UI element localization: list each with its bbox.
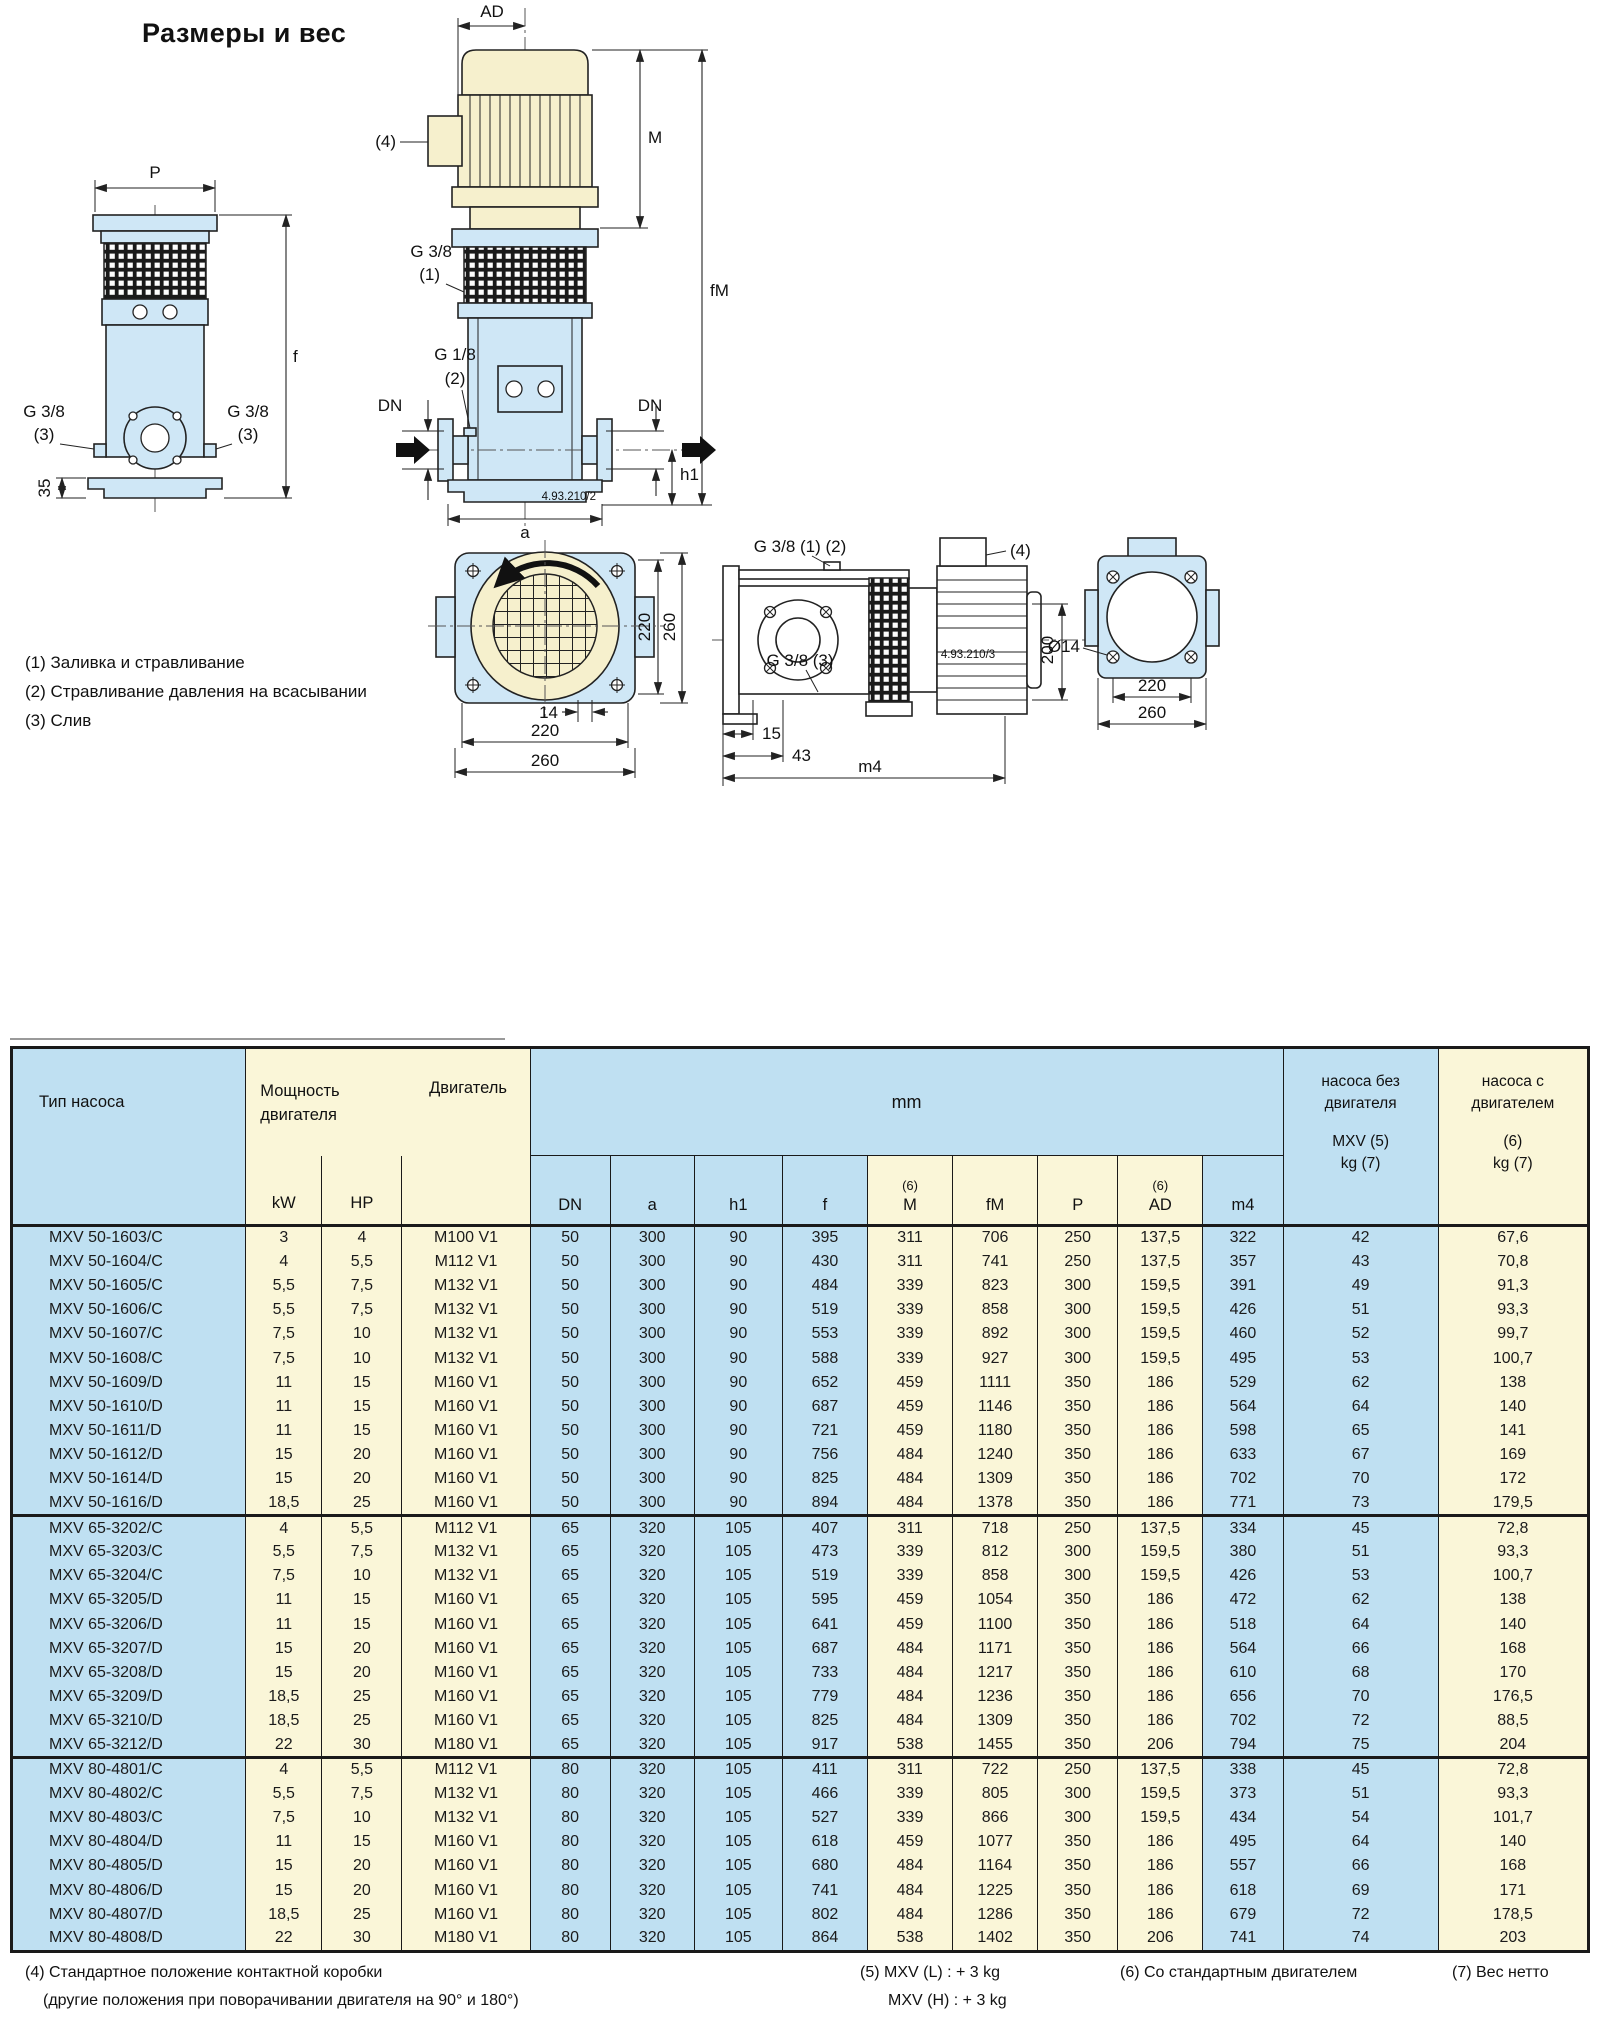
table-cell: 72	[1283, 1903, 1438, 1927]
table-row: MXV 80-4805/D1520M160 V18032010568048411…	[12, 1854, 1589, 1878]
table-cell: 65	[530, 1516, 610, 1540]
table-cell: 90	[694, 1274, 782, 1298]
table-cell: 300	[610, 1274, 694, 1298]
table-cell: 350	[1038, 1661, 1118, 1685]
table-cell: 741	[953, 1250, 1038, 1274]
legend-item-2: (2) Стравливание давления на всасывании	[25, 677, 367, 706]
dim-label-h1: h1	[680, 465, 699, 484]
pump-type-cell: MXV 65-3206/D	[12, 1613, 246, 1637]
table-cell: 350	[1038, 1927, 1118, 1951]
table-cell: 459	[867, 1830, 952, 1854]
table-block: MXV 65-3202/C45,5M112 V16532010540731171…	[12, 1516, 1589, 1758]
dim-label-d14: Ø14	[1048, 637, 1080, 656]
table-cell: 65	[530, 1613, 610, 1637]
table-cell: 518	[1203, 1613, 1283, 1637]
dim-label-14: 14	[539, 703, 558, 722]
table-cell: 15	[322, 1830, 402, 1854]
table-cell: 1054	[953, 1588, 1038, 1612]
table-cell: 18,5	[246, 1903, 322, 1927]
table-cell: 7,5	[322, 1782, 402, 1806]
table-cell: M132 V1	[402, 1322, 530, 1346]
port-label-1: (1)	[419, 265, 440, 284]
table-cell: M132 V1	[402, 1806, 530, 1830]
table-cell: 178,5	[1438, 1903, 1588, 1927]
table-cell: 1378	[953, 1492, 1038, 1516]
table-cell: 50	[530, 1250, 610, 1274]
table-row: MXV 80-4803/C7,510M132 V1803201055273398…	[12, 1806, 1589, 1830]
table-cell: 186	[1118, 1709, 1203, 1733]
table-cell: 459	[867, 1588, 952, 1612]
table-cell: M100 V1	[402, 1226, 530, 1250]
table-cell: 484	[867, 1443, 952, 1467]
kg-pump-line1: насоса без	[1285, 1071, 1437, 1093]
table-cell: 72,8	[1438, 1516, 1588, 1540]
table-cell: 105	[694, 1709, 782, 1733]
table-cell: 300	[1038, 1782, 1118, 1806]
table-cell: 186	[1118, 1661, 1203, 1685]
table-cell: 186	[1118, 1371, 1203, 1395]
table-cell: 4	[246, 1250, 322, 1274]
pump-type-cell: MXV 65-3205/D	[12, 1588, 246, 1612]
table-row: MXV 50-1607/C7,510M132 V1503009055333989…	[12, 1322, 1589, 1346]
table-cell: 18,5	[246, 1685, 322, 1709]
table-cell: 100,7	[1438, 1346, 1588, 1370]
flow-direction-arrow-left	[396, 436, 430, 464]
table-cell: 1455	[953, 1733, 1038, 1757]
table-cell: 43	[1283, 1250, 1438, 1274]
table-cell: 322	[1203, 1226, 1283, 1250]
table-cell: 67	[1283, 1443, 1438, 1467]
callout-4-side: (4)	[1010, 541, 1031, 560]
table-cell: 460	[1203, 1322, 1283, 1346]
divider	[10, 1038, 505, 1040]
kg-motor-line4: kg (7)	[1440, 1153, 1586, 1175]
col-header-pump-type: Тип насоса	[12, 1048, 246, 1226]
table-cell: 80	[530, 1758, 610, 1782]
table-cell: 80	[530, 1782, 610, 1806]
table-cell: 350	[1038, 1709, 1118, 1733]
table-cell: M160 V1	[402, 1371, 530, 1395]
table-cell: 50	[530, 1467, 610, 1491]
table-cell: 250	[1038, 1758, 1118, 1782]
table-cell: 10	[322, 1322, 402, 1346]
table-cell: 459	[867, 1371, 952, 1395]
table-cell: 90	[694, 1419, 782, 1443]
table-cell: 186	[1118, 1879, 1203, 1903]
table-cell: 25	[322, 1492, 402, 1516]
table-cell: M160 V1	[402, 1395, 530, 1419]
table-cell: 171	[1438, 1879, 1588, 1903]
table-cell: 105	[694, 1733, 782, 1757]
table-cell: 250	[1038, 1226, 1118, 1250]
table-cell: 320	[610, 1564, 694, 1588]
table-cell: 484	[867, 1879, 952, 1903]
table-cell: 656	[1203, 1685, 1283, 1709]
table-cell: 176,5	[1438, 1685, 1588, 1709]
table-cell: 5,5	[246, 1540, 322, 1564]
table-cell: 426	[1203, 1298, 1283, 1322]
table-cell: 350	[1038, 1467, 1118, 1491]
pump-type-cell: MXV 80-4802/C	[12, 1782, 246, 1806]
table-cell: 65	[530, 1661, 610, 1685]
table-cell: 206	[1118, 1927, 1203, 1951]
table-cell: 718	[953, 1516, 1038, 1540]
table-cell: 186	[1118, 1830, 1203, 1854]
table-cell: M160 V1	[402, 1830, 530, 1854]
table-cell: 4	[246, 1758, 322, 1782]
pump-type-cell: MXV 80-4808/D	[12, 1927, 246, 1951]
table-row: MXV 80-4801/C45,5M112 V18032010541131172…	[12, 1758, 1589, 1782]
table-cell: 320	[610, 1637, 694, 1661]
table-cell: 15	[322, 1613, 402, 1637]
table-cell: 588	[782, 1346, 867, 1370]
col-header-motor: Двигатель	[406, 1079, 529, 1098]
table-row: MXV 50-1612/D1520M160 V15030090756484124…	[12, 1443, 1589, 1467]
table-cell: 90	[694, 1226, 782, 1250]
table-cell: 105	[694, 1879, 782, 1903]
table-cell: 300	[1038, 1274, 1118, 1298]
table-cell: 538	[867, 1927, 952, 1951]
table-cell: 15	[246, 1661, 322, 1685]
kg-pump-line3: MXV (5)	[1285, 1131, 1437, 1153]
table-cell: 45	[1283, 1758, 1438, 1782]
dim-label-dn-right: DN	[638, 396, 663, 415]
col-header-f: f	[782, 1156, 867, 1226]
table-cell: 15	[246, 1637, 322, 1661]
table-cell: 350	[1038, 1588, 1118, 1612]
dim-label-f: f	[293, 347, 298, 366]
dim-label-220-flange: 220	[1138, 676, 1166, 695]
table-cell: 51	[1283, 1540, 1438, 1564]
table-cell: 80	[530, 1927, 610, 1951]
table-row: MXV 80-4808/D2230M180 V18032010586453814…	[12, 1927, 1589, 1951]
table-cell: M160 V1	[402, 1661, 530, 1685]
table-cell: 825	[782, 1467, 867, 1491]
table-cell: 300	[610, 1371, 694, 1395]
table-cell: 529	[1203, 1371, 1283, 1395]
table-cell: 350	[1038, 1613, 1118, 1637]
table-cell: 159,5	[1118, 1298, 1203, 1322]
table-cell: 70	[1283, 1467, 1438, 1491]
dim-label-220-side: 220	[635, 613, 654, 641]
table-cell: 300	[610, 1419, 694, 1443]
flange-view-drawing: Ø14 220 260	[1048, 538, 1219, 730]
table-cell: 339	[867, 1346, 952, 1370]
table-cell: 15	[322, 1419, 402, 1443]
motor-header-spacer	[402, 1156, 530, 1226]
col-header-m: (6) M	[867, 1156, 952, 1226]
col-header-p: P	[1038, 1156, 1118, 1226]
top-view-drawing: 220 260 14 220 260	[428, 540, 688, 778]
table-cell: 186	[1118, 1613, 1203, 1637]
table-cell: 159,5	[1118, 1274, 1203, 1298]
table-cell: 15	[322, 1588, 402, 1612]
table-cell: 250	[1038, 1516, 1118, 1540]
table-cell: 22	[246, 1927, 322, 1951]
table-cell: 159,5	[1118, 1782, 1203, 1806]
table-cell: M132 V1	[402, 1564, 530, 1588]
table-cell: 11	[246, 1419, 322, 1443]
table-cell: M160 V1	[402, 1588, 530, 1612]
table-cell: 11	[246, 1588, 322, 1612]
table-cell: 706	[953, 1226, 1038, 1250]
table-cell: 618	[782, 1830, 867, 1854]
table-cell: M160 V1	[402, 1903, 530, 1927]
table-cell: 15	[246, 1854, 322, 1878]
table-cell: 300	[610, 1346, 694, 1370]
dim-label-43: 43	[792, 746, 811, 765]
table-row: MXV 65-3204/C7,510M132 V1653201055193398…	[12, 1564, 1589, 1588]
table-cell: 90	[694, 1346, 782, 1370]
port-label-g18: G 1/8	[434, 345, 476, 364]
table-row: MXV 65-3208/D1520M160 V16532010573348412…	[12, 1661, 1589, 1685]
kg-pump-line4: kg (7)	[1285, 1153, 1437, 1175]
table-cell: 300	[1038, 1298, 1118, 1322]
table-row: MXV 50-1614/D1520M160 V15030090825484130…	[12, 1467, 1589, 1491]
pump-type-cell: MXV 50-1610/D	[12, 1395, 246, 1419]
note-6-ad: (6)	[1119, 1177, 1201, 1195]
table-cell: 66	[1283, 1854, 1438, 1878]
pump-type-cell: MXV 50-1611/D	[12, 1419, 246, 1443]
table-cell: 538	[867, 1733, 952, 1757]
table-cell: M132 V1	[402, 1346, 530, 1370]
table-cell: 300	[610, 1322, 694, 1346]
table-cell: 105	[694, 1854, 782, 1878]
table-cell: 80	[530, 1806, 610, 1830]
table-cell: 484	[867, 1854, 952, 1878]
table-cell: M132 V1	[402, 1274, 530, 1298]
table-cell: M160 V1	[402, 1709, 530, 1733]
table-cell: 64	[1283, 1830, 1438, 1854]
table-cell: 858	[953, 1298, 1038, 1322]
table-cell: 721	[782, 1419, 867, 1443]
table-cell: 311	[867, 1758, 952, 1782]
table-cell: 203	[1438, 1927, 1588, 1951]
table-cell: 350	[1038, 1903, 1118, 1927]
table-cell: 140	[1438, 1613, 1588, 1637]
table-cell: 350	[1038, 1685, 1118, 1709]
dim-label-p: P	[149, 163, 160, 182]
table-cell: 430	[782, 1250, 867, 1274]
table-cell: 1146	[953, 1395, 1038, 1419]
table-cell: 172	[1438, 1467, 1588, 1491]
pump-type-cell: MXV 65-3212/D	[12, 1733, 246, 1757]
table-cell: 598	[1203, 1419, 1283, 1443]
table-cell: 70,8	[1438, 1250, 1588, 1274]
page-title: Размеры и вес	[142, 18, 346, 49]
table-cell: 30	[322, 1733, 402, 1757]
table-cell: 391	[1203, 1274, 1283, 1298]
table-cell: 64	[1283, 1613, 1438, 1637]
table-cell: 652	[782, 1371, 867, 1395]
table-cell: 1180	[953, 1419, 1038, 1443]
table-cell: 10	[322, 1564, 402, 1588]
flow-direction-arrow-right	[682, 436, 716, 464]
table-cell: 357	[1203, 1250, 1283, 1274]
col-header-power: Мощность двигателя	[246, 1079, 406, 1127]
table-cell: 50	[530, 1322, 610, 1346]
power-label-line2: двигателя	[260, 1103, 406, 1127]
col-header-dn: DN	[530, 1156, 610, 1226]
table-cell: 519	[782, 1564, 867, 1588]
technical-drawings: P f 35 G 3/8 (3) G	[0, 0, 1600, 1040]
table-cell: 15	[246, 1879, 322, 1903]
pump-type-cell: MXV 65-3208/D	[12, 1661, 246, 1685]
table-cell: 50	[530, 1419, 610, 1443]
table-cell: 100,7	[1438, 1564, 1588, 1588]
table-cell: 138	[1438, 1588, 1588, 1612]
table-cell: 65	[530, 1564, 610, 1588]
table-cell: 105	[694, 1830, 782, 1854]
table-cell: 140	[1438, 1395, 1588, 1419]
table-cell: 320	[610, 1854, 694, 1878]
table-cell: 1402	[953, 1927, 1038, 1951]
table-cell: 311	[867, 1226, 952, 1250]
footnote-5-line2: MXV (H) : + 3 kg	[888, 1992, 1007, 2010]
table-cell: 7,5	[322, 1298, 402, 1322]
table-cell: 459	[867, 1613, 952, 1637]
table-cell: 1100	[953, 1613, 1038, 1637]
table-cell: 679	[1203, 1903, 1283, 1927]
table-cell: 1309	[953, 1467, 1038, 1491]
dimensions-table-wrap: Тип насоса Мощность двигателя Двигатель …	[10, 1046, 1590, 1953]
pump-type-cell: MXV 80-4801/C	[12, 1758, 246, 1782]
table-cell: 80	[530, 1830, 610, 1854]
table-cell: 687	[782, 1395, 867, 1419]
table-cell: 105	[694, 1758, 782, 1782]
pump-type-cell: MXV 50-1609/D	[12, 1371, 246, 1395]
table-cell: 250	[1038, 1250, 1118, 1274]
table-row: MXV 50-1606/C5,57,5M132 V150300905193398…	[12, 1298, 1589, 1322]
table-cell: M160 V1	[402, 1443, 530, 1467]
port-label-2: (2)	[445, 369, 466, 388]
col-header-ad: (6) AD	[1118, 1156, 1203, 1226]
table-cell: 90	[694, 1371, 782, 1395]
table-cell: M132 V1	[402, 1298, 530, 1322]
table-cell: 93,3	[1438, 1540, 1588, 1564]
table-cell: 339	[867, 1540, 952, 1564]
table-cell: 10	[322, 1806, 402, 1830]
table-cell: 300	[1038, 1540, 1118, 1564]
table-cell: 311	[867, 1516, 952, 1540]
table-cell: 18,5	[246, 1492, 322, 1516]
dim-label-260-side: 260	[660, 613, 679, 641]
pump-type-cell: MXV 50-1616/D	[12, 1492, 246, 1516]
table-cell: 53	[1283, 1346, 1438, 1370]
table-cell: 159,5	[1118, 1540, 1203, 1564]
table-cell: 186	[1118, 1443, 1203, 1467]
pump-type-cell: MXV 50-1614/D	[12, 1467, 246, 1491]
table-cell: 7,5	[246, 1322, 322, 1346]
table-cell: 320	[610, 1661, 694, 1685]
table-cell: 1309	[953, 1709, 1038, 1733]
table-cell: 62	[1283, 1371, 1438, 1395]
table-row: MXV 65-3206/D1115M160 V16532010564145911…	[12, 1613, 1589, 1637]
table-cell: 495	[1203, 1346, 1283, 1370]
table-cell: 101,7	[1438, 1806, 1588, 1830]
col-header-kw: kW	[246, 1156, 322, 1226]
table-cell: M112 V1	[402, 1516, 530, 1540]
table-cell: 4	[322, 1226, 402, 1250]
pump-type-cell: MXV 65-3210/D	[12, 1709, 246, 1733]
table-cell: 3	[246, 1226, 322, 1250]
table-block: MXV 80-4801/C45,5M112 V18032010541131172…	[12, 1758, 1589, 1952]
table-cell: 350	[1038, 1854, 1118, 1878]
table-cell: 140	[1438, 1830, 1588, 1854]
port-label-g38-3: G 3/8 (3)	[766, 651, 833, 670]
table-cell: 892	[953, 1322, 1038, 1346]
footnote-6: (6) Со стандартным двигателем	[1120, 1964, 1357, 1982]
pump-type-cell: MXV 65-3204/C	[12, 1564, 246, 1588]
table-cell: 204	[1438, 1733, 1588, 1757]
ad-label: AD	[1119, 1195, 1201, 1215]
table-cell: 557	[1203, 1854, 1283, 1878]
table-cell: 15	[322, 1371, 402, 1395]
table-cell: 300	[1038, 1564, 1118, 1588]
table-cell: 80	[530, 1903, 610, 1927]
table-cell: 1286	[953, 1903, 1038, 1927]
pump-type-cell: MXV 65-3202/C	[12, 1516, 246, 1540]
table-cell: 320	[610, 1516, 694, 1540]
table-cell: M160 V1	[402, 1419, 530, 1443]
table-cell: 320	[610, 1806, 694, 1830]
table-cell: 320	[610, 1879, 694, 1903]
table-cell: 339	[867, 1274, 952, 1298]
table-cell: 300	[610, 1250, 694, 1274]
table-cell: 927	[953, 1346, 1038, 1370]
table-cell: 105	[694, 1903, 782, 1927]
table-cell: 320	[610, 1540, 694, 1564]
table-cell: 90	[694, 1395, 782, 1419]
table-cell: 30	[322, 1927, 402, 1951]
table-cell: 812	[953, 1540, 1038, 1564]
table-cell: 50	[530, 1298, 610, 1322]
table-cell: 350	[1038, 1443, 1118, 1467]
table-cell: 105	[694, 1685, 782, 1709]
table-cell: 64	[1283, 1395, 1438, 1419]
table-cell: 779	[782, 1685, 867, 1709]
pump-type-cell: MXV 80-4806/D	[12, 1879, 246, 1903]
table-cell: 105	[694, 1540, 782, 1564]
front-view-drawing: P f 35 G 3/8 (3) G	[23, 163, 298, 512]
table-cell: M160 V1	[402, 1879, 530, 1903]
dimensions-table: Тип насоса Мощность двигателя Двигатель …	[10, 1046, 1590, 1953]
port-label-g38-left: G 3/8	[23, 402, 65, 421]
table-cell: 722	[953, 1758, 1038, 1782]
table-cell: 90	[694, 1443, 782, 1467]
pump-type-cell: MXV 50-1612/D	[12, 1443, 246, 1467]
table-cell: 20	[322, 1661, 402, 1685]
table-cell: 411	[782, 1758, 867, 1782]
table-cell: 7,5	[322, 1274, 402, 1298]
side-view-drawing: G 3/8 (1) (2) (4) G 3/8 (3) 4.93.210/3 2…	[712, 537, 1090, 786]
table-cell: 90	[694, 1298, 782, 1322]
table-cell: 11	[246, 1613, 322, 1637]
kg-motor-line1: насоса с	[1440, 1071, 1586, 1093]
port-label-3-right: (3)	[238, 425, 259, 444]
table-cell: 80	[530, 1879, 610, 1903]
table-row: MXV 65-3212/D2230M180 V16532010591753814…	[12, 1733, 1589, 1757]
kg-motor-line3: (6)	[1440, 1131, 1586, 1153]
table-cell: 805	[953, 1782, 1038, 1806]
table-cell: 350	[1038, 1830, 1118, 1854]
table-cell: 11	[246, 1371, 322, 1395]
table-cell: M180 V1	[402, 1733, 530, 1757]
table-cell: 618	[1203, 1879, 1283, 1903]
table-cell: 65	[530, 1709, 610, 1733]
table-cell: 105	[694, 1613, 782, 1637]
table-cell: 320	[610, 1927, 694, 1951]
